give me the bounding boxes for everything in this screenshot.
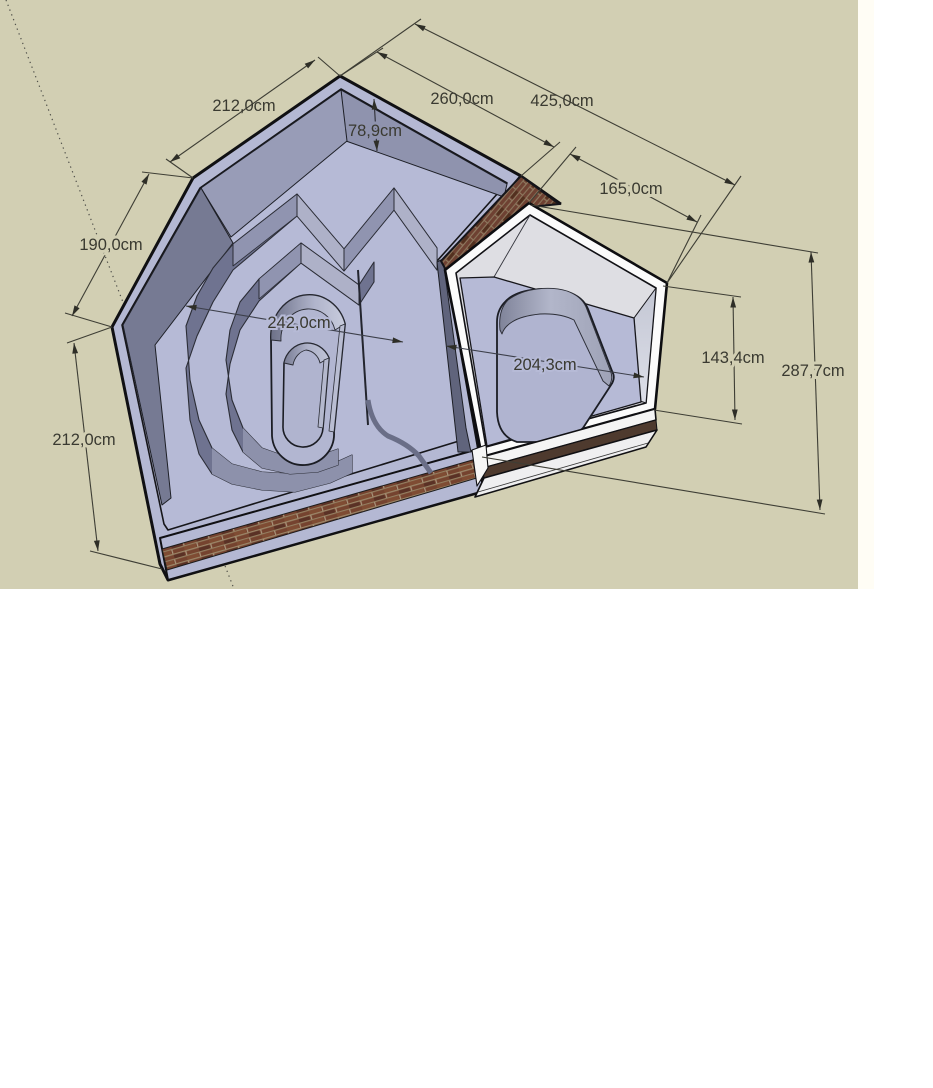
svg-text:143,4cm: 143,4cm xyxy=(701,349,764,367)
svg-text:212,0cm: 212,0cm xyxy=(52,431,115,449)
svg-text:260,0cm: 260,0cm xyxy=(430,90,493,108)
svg-text:212,0cm: 212,0cm xyxy=(212,97,275,115)
svg-text:204,3cm: 204,3cm xyxy=(513,356,576,374)
svg-text:190,0cm: 190,0cm xyxy=(79,236,142,254)
svg-text:165,0cm: 165,0cm xyxy=(599,180,662,198)
svg-text:242,0cm: 242,0cm xyxy=(267,314,330,332)
svg-text:287,7cm: 287,7cm xyxy=(781,362,844,380)
svg-text:425,0cm: 425,0cm xyxy=(530,92,593,110)
svg-text:78,9cm: 78,9cm xyxy=(348,122,402,140)
